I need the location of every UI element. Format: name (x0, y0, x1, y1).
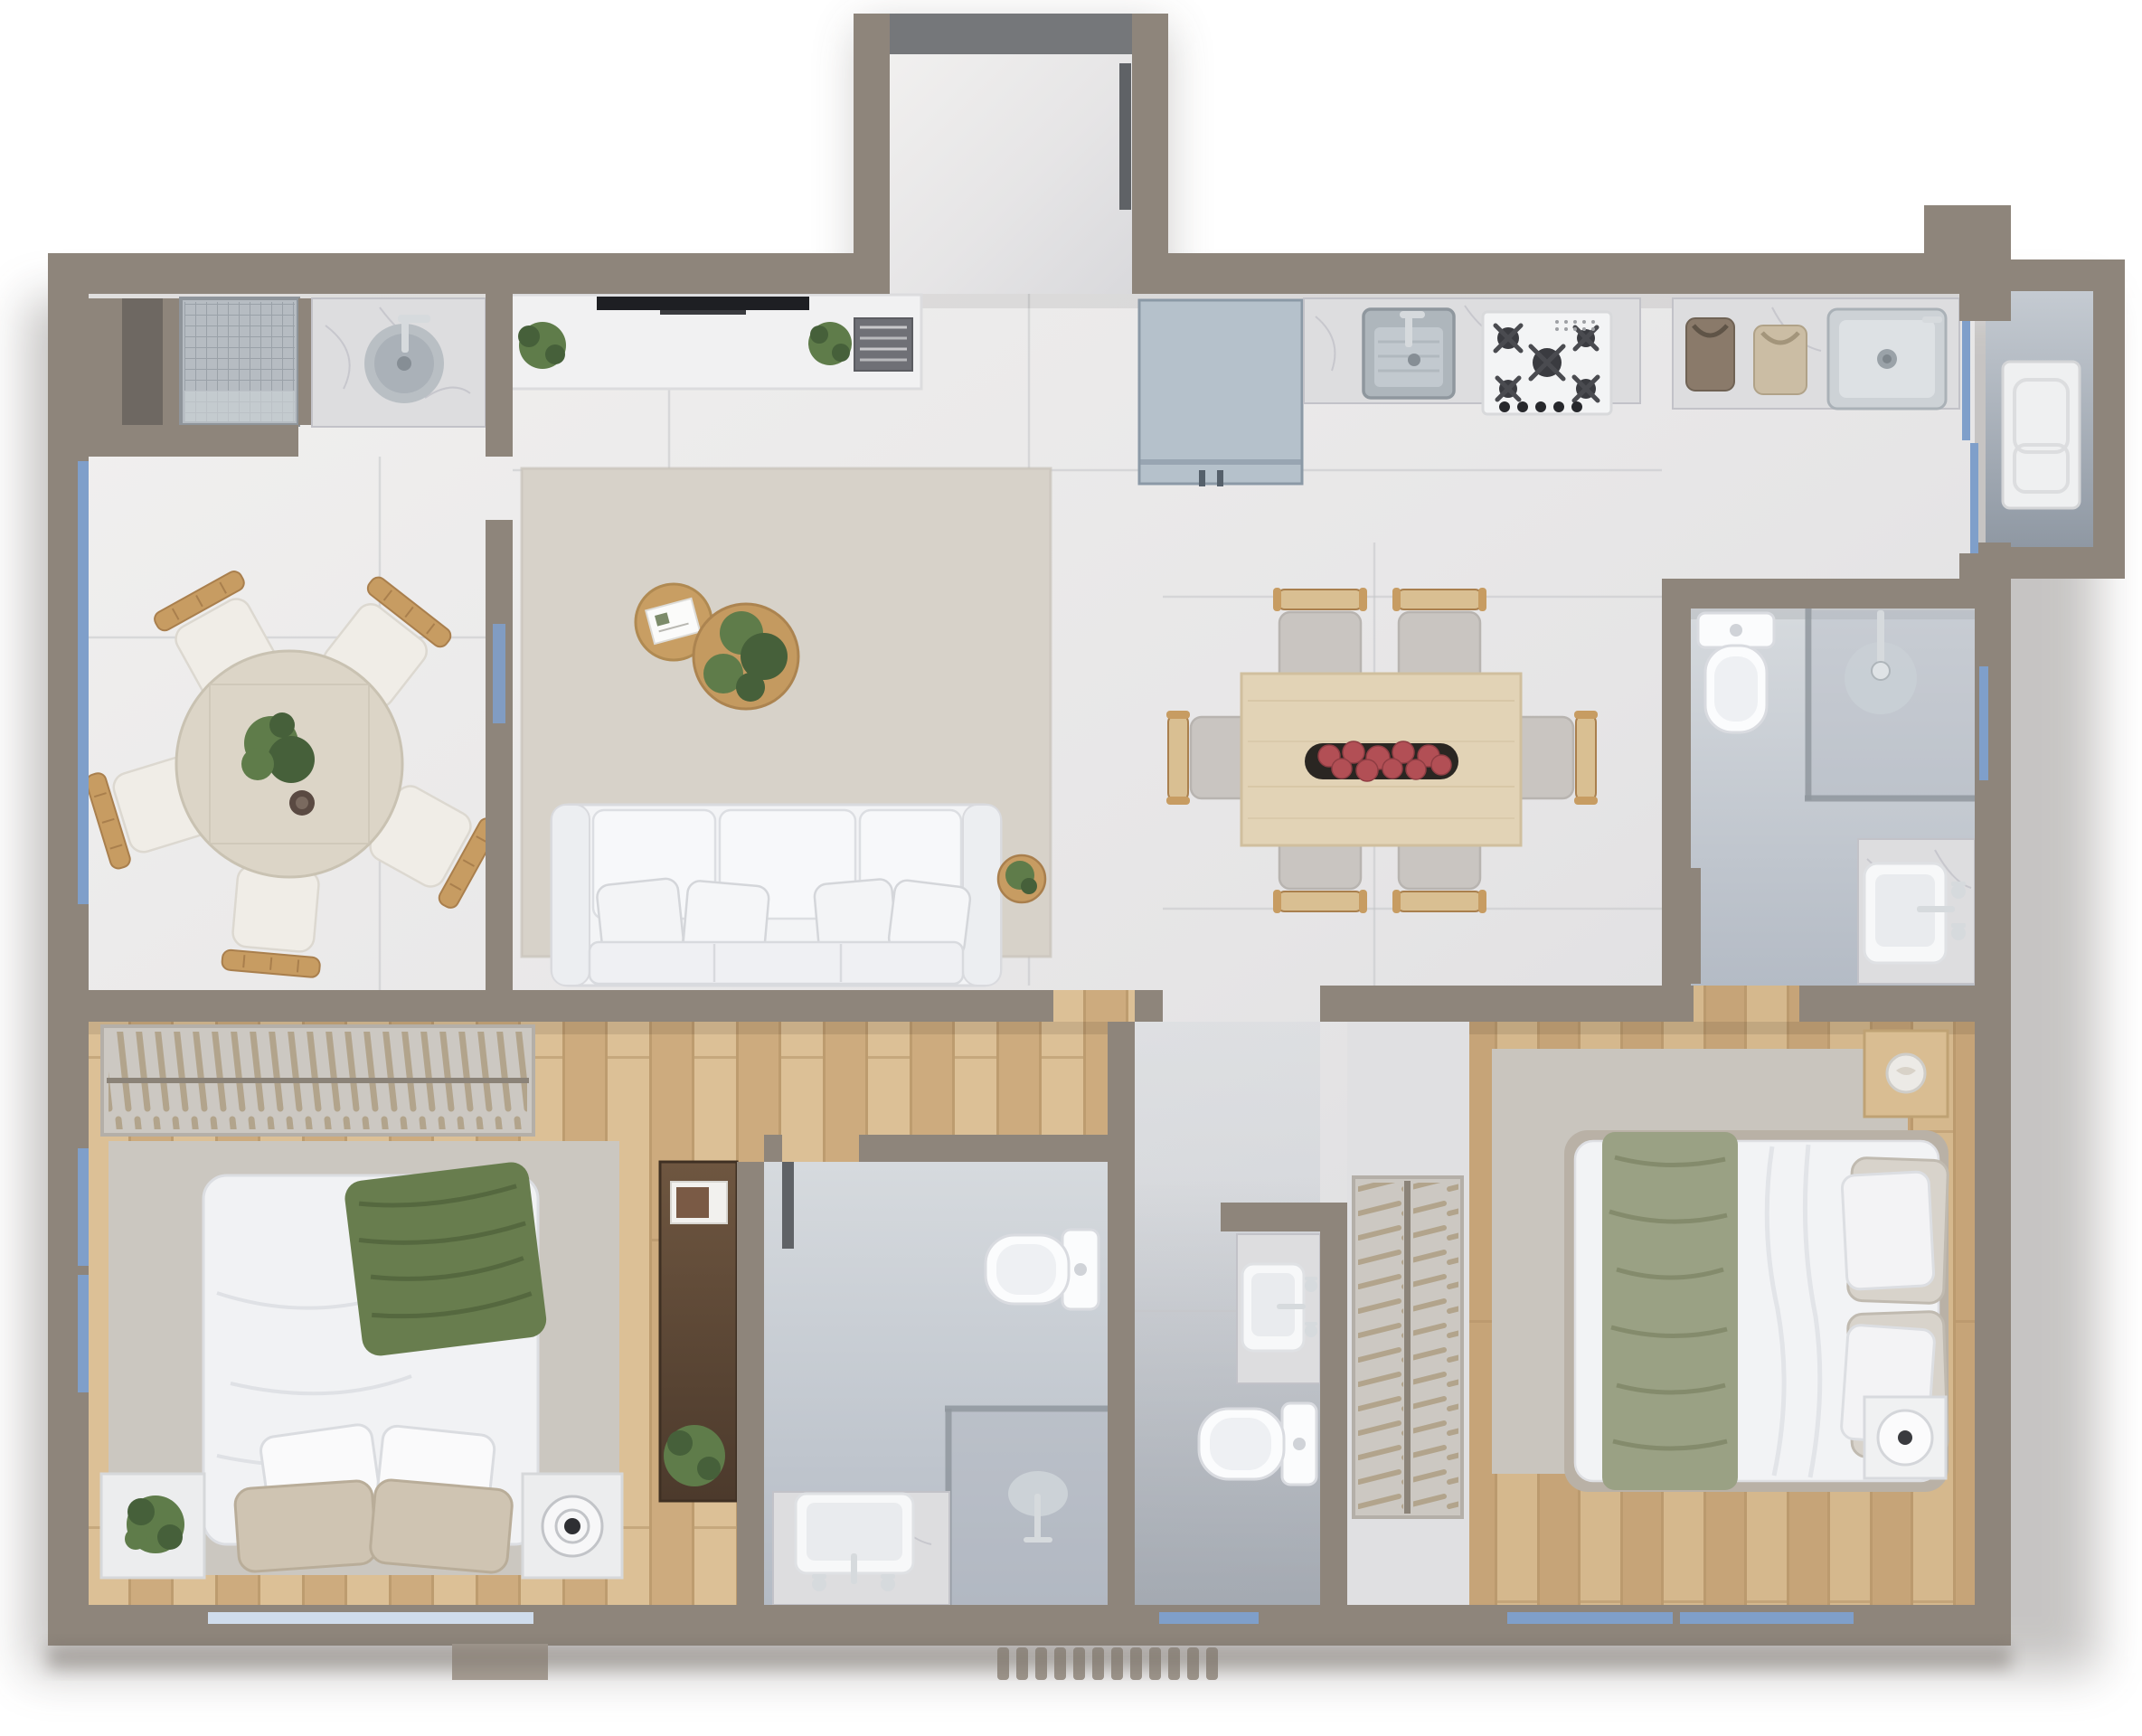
shower (1805, 609, 1975, 800)
dark-cabinet (660, 1162, 737, 1501)
entry-wall-right (1132, 14, 1168, 294)
wall-bottom (48, 1605, 2011, 1646)
bathroom1-door-leaf (782, 1162, 794, 1249)
gas-cooktop (1483, 312, 1611, 414)
balcony-wall-bottom (1975, 547, 2125, 579)
fabric-bag-brown (1686, 318, 1734, 391)
coffee-table-large (694, 604, 798, 709)
entry-hall-floor (890, 50, 1132, 294)
master-wall-top-b (1799, 986, 1975, 1022)
console-plant-right (808, 322, 852, 365)
wall-v1-lower (486, 520, 513, 1022)
master-vanity (1858, 839, 1975, 984)
master-wall-top-a (1469, 986, 1694, 1022)
sofa (552, 805, 1001, 986)
wall-top-right-bump (1924, 205, 2011, 259)
faucet-icon (1400, 311, 1425, 318)
sage-throw (1602, 1132, 1738, 1490)
book-stack (854, 318, 912, 371)
bed-pillows (234, 1423, 514, 1574)
rack-rail (1404, 1181, 1411, 1514)
glass-partition-dining (493, 624, 505, 723)
window-dining-left (78, 461, 89, 904)
window-master-bottom-b (1680, 1612, 1854, 1624)
wall-h2-left (89, 990, 1053, 1022)
sliding-door-panel-a (1962, 321, 1970, 440)
closet-rail (107, 1078, 529, 1083)
faucet-icon (1922, 316, 1942, 323)
laundry-wall-mid (163, 298, 181, 425)
masterbath-wall-left (1662, 579, 1691, 986)
shower-arm-icon (1034, 1494, 1041, 1541)
sofa-seat-band (590, 942, 963, 984)
dining-chair (1273, 588, 1367, 683)
floor-grate (181, 298, 298, 425)
dining-table (1241, 674, 1521, 845)
wc-wall-top (1221, 1203, 1347, 1231)
toilet (1199, 1403, 1316, 1485)
nightstand-left (101, 1474, 204, 1578)
bed (203, 1160, 548, 1573)
drain-icon (397, 356, 411, 371)
faucet-icon (1917, 906, 1955, 912)
shower-arm-icon (1877, 610, 1884, 666)
master-bedroom (1492, 1031, 1949, 1492)
wall-h2-right (1135, 990, 1163, 1022)
service-area (1673, 298, 1959, 409)
handle-icon (1199, 470, 1205, 486)
kitchen-sink (1364, 309, 1454, 398)
bathroom1-wall-top-a (764, 1135, 782, 1162)
balcony-door-jamb (1959, 553, 1975, 579)
bathroom1-wall-left (737, 1162, 764, 1605)
sofa-arm-left (552, 805, 590, 986)
laundry-wall-left (89, 298, 122, 425)
nightstand-right (523, 1474, 622, 1578)
wall-niche (122, 298, 163, 425)
vanity (773, 1492, 949, 1605)
round-dining-table (176, 651, 402, 877)
window-bedroom1-bottom (208, 1612, 533, 1624)
wall-top-right (1168, 253, 2011, 294)
dining-chair (1392, 588, 1486, 683)
bedroom1-door-floor (1053, 990, 1135, 1026)
bathroom1-wall-right (1108, 1022, 1135, 1605)
dining-chair (222, 863, 328, 977)
toilet (986, 1230, 1099, 1309)
wall-laundry-bottom (89, 425, 298, 457)
laundry-niche (89, 298, 486, 427)
flush-button-icon (1074, 1263, 1087, 1276)
closet-wall-top (1320, 986, 1469, 1022)
window-bedroom1-a (78, 1148, 89, 1266)
green-throw (343, 1160, 548, 1358)
window-master-bottom-a (1507, 1612, 1673, 1624)
faucet-icon (1277, 1304, 1306, 1309)
service-balcony (2003, 362, 2080, 508)
masterbath-wall-top (1662, 579, 1975, 609)
tv-icon (597, 297, 809, 310)
media-console (509, 295, 921, 389)
wc-wall-right (1320, 1231, 1347, 1605)
side-plant-table (998, 855, 1045, 902)
shower (945, 1409, 1108, 1605)
faucet-icon (851, 1553, 857, 1584)
window-corridor-bottom (1159, 1612, 1259, 1624)
floor-plan-stage (0, 0, 2142, 1736)
bottom-wall-face (48, 1646, 2011, 1669)
master-nightstand (1864, 1031, 1948, 1117)
steel-laundry-sink (1828, 309, 1946, 409)
floor-plan-svg (0, 0, 2142, 1736)
window-master-bath (1979, 666, 1988, 780)
wall-top-left (48, 253, 854, 294)
fridge-cabinet (1139, 300, 1302, 486)
handle-icon (1217, 470, 1223, 486)
entry-threshold (890, 14, 1132, 54)
speaker-table (1864, 1397, 1946, 1478)
entry-wall-left (854, 14, 890, 294)
master-bath-door-floor (1694, 981, 1799, 1026)
flush-button-icon (1293, 1438, 1306, 1450)
bathroom1-wall-top-b (859, 1135, 1135, 1162)
master-closet (1354, 1177, 1462, 1517)
fabric-bag-beige (1754, 325, 1807, 394)
entry-door-leaf (1119, 63, 1131, 210)
shower-head-icon (1872, 662, 1890, 680)
flush-button-icon (1730, 624, 1742, 637)
kitchen-ne-wall (1959, 253, 2011, 321)
drain-icon (1408, 354, 1420, 366)
window-bedroom1-b (78, 1275, 89, 1392)
toilet (1698, 613, 1774, 732)
laundry-divider-wall (298, 298, 312, 425)
open-wardrobe-rack (102, 1026, 533, 1135)
wall-v1-upper (486, 294, 513, 457)
vanity-stub-wall (1691, 868, 1701, 984)
balcony-wall-right (2093, 259, 2125, 579)
laundry-counter (312, 298, 486, 427)
sliding-door-panel-b (1970, 443, 1978, 553)
